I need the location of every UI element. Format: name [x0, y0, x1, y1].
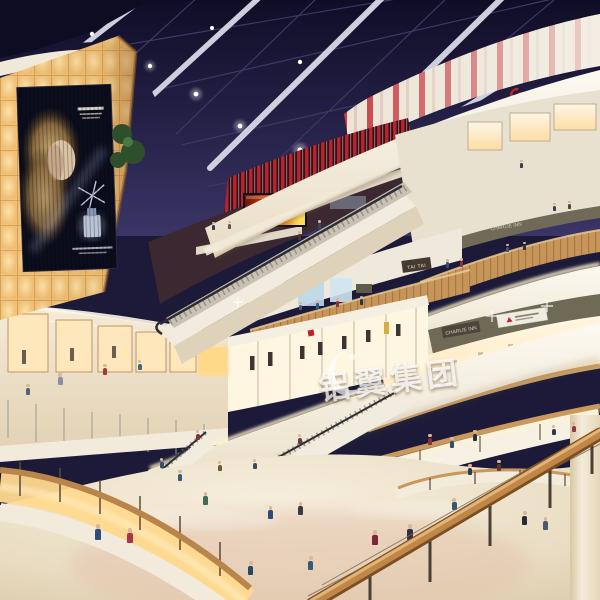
scene-canvas: THEATRES CHARLIE INN	[0, 0, 600, 600]
mall-atrium-rendering: THEATRES CHARLIE INN	[0, 0, 600, 600]
right-pillar	[570, 415, 600, 600]
billboard	[15, 84, 117, 271]
